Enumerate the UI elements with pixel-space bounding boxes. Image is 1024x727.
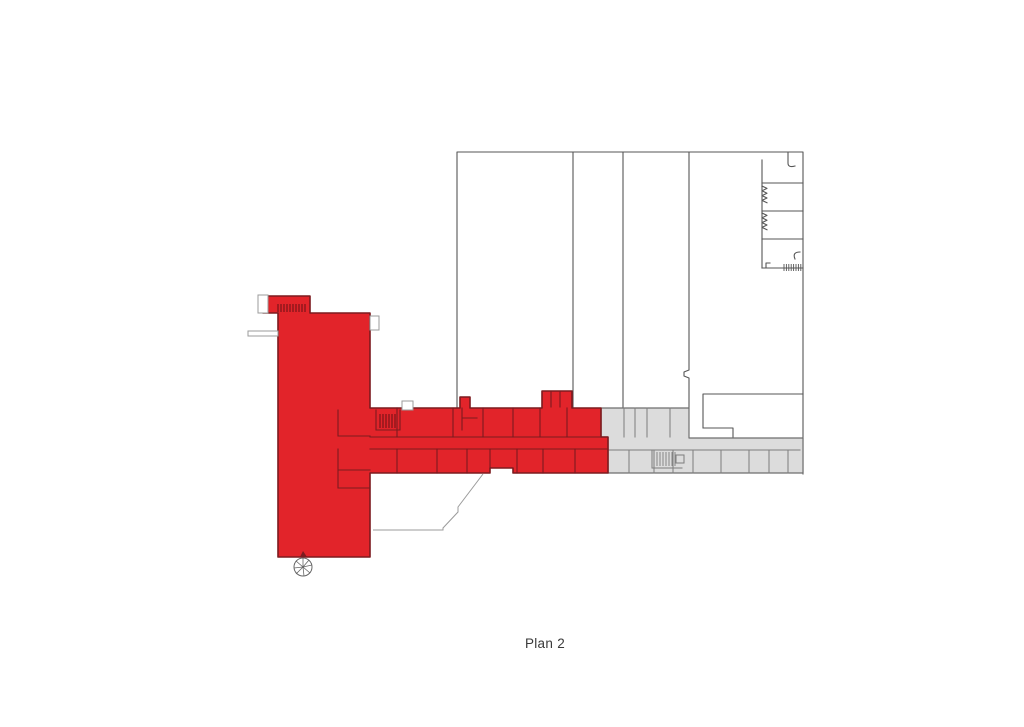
floor-plan-canvas xyxy=(0,0,1024,727)
door-swing-icon xyxy=(794,252,800,259)
highlighted-wing-zone xyxy=(263,296,608,557)
plan-caption: Plan 2 xyxy=(495,636,595,651)
lower-boundary-line xyxy=(373,474,483,530)
building-partition-3 xyxy=(684,152,689,408)
annex-box-corridor xyxy=(402,401,413,410)
secondary-wing-zone xyxy=(601,408,803,473)
door-swing-icon xyxy=(788,152,795,167)
annex-band-left xyxy=(248,331,278,336)
annex-tab-right xyxy=(370,316,379,330)
wall-break-icon xyxy=(762,186,767,203)
right-room-outline xyxy=(703,394,803,438)
page: Plan 2 xyxy=(0,0,1024,727)
wall-break-icon xyxy=(762,213,767,230)
door-notch xyxy=(766,263,770,268)
annex-box-top-left xyxy=(258,295,268,313)
staircase-icon xyxy=(657,452,675,466)
